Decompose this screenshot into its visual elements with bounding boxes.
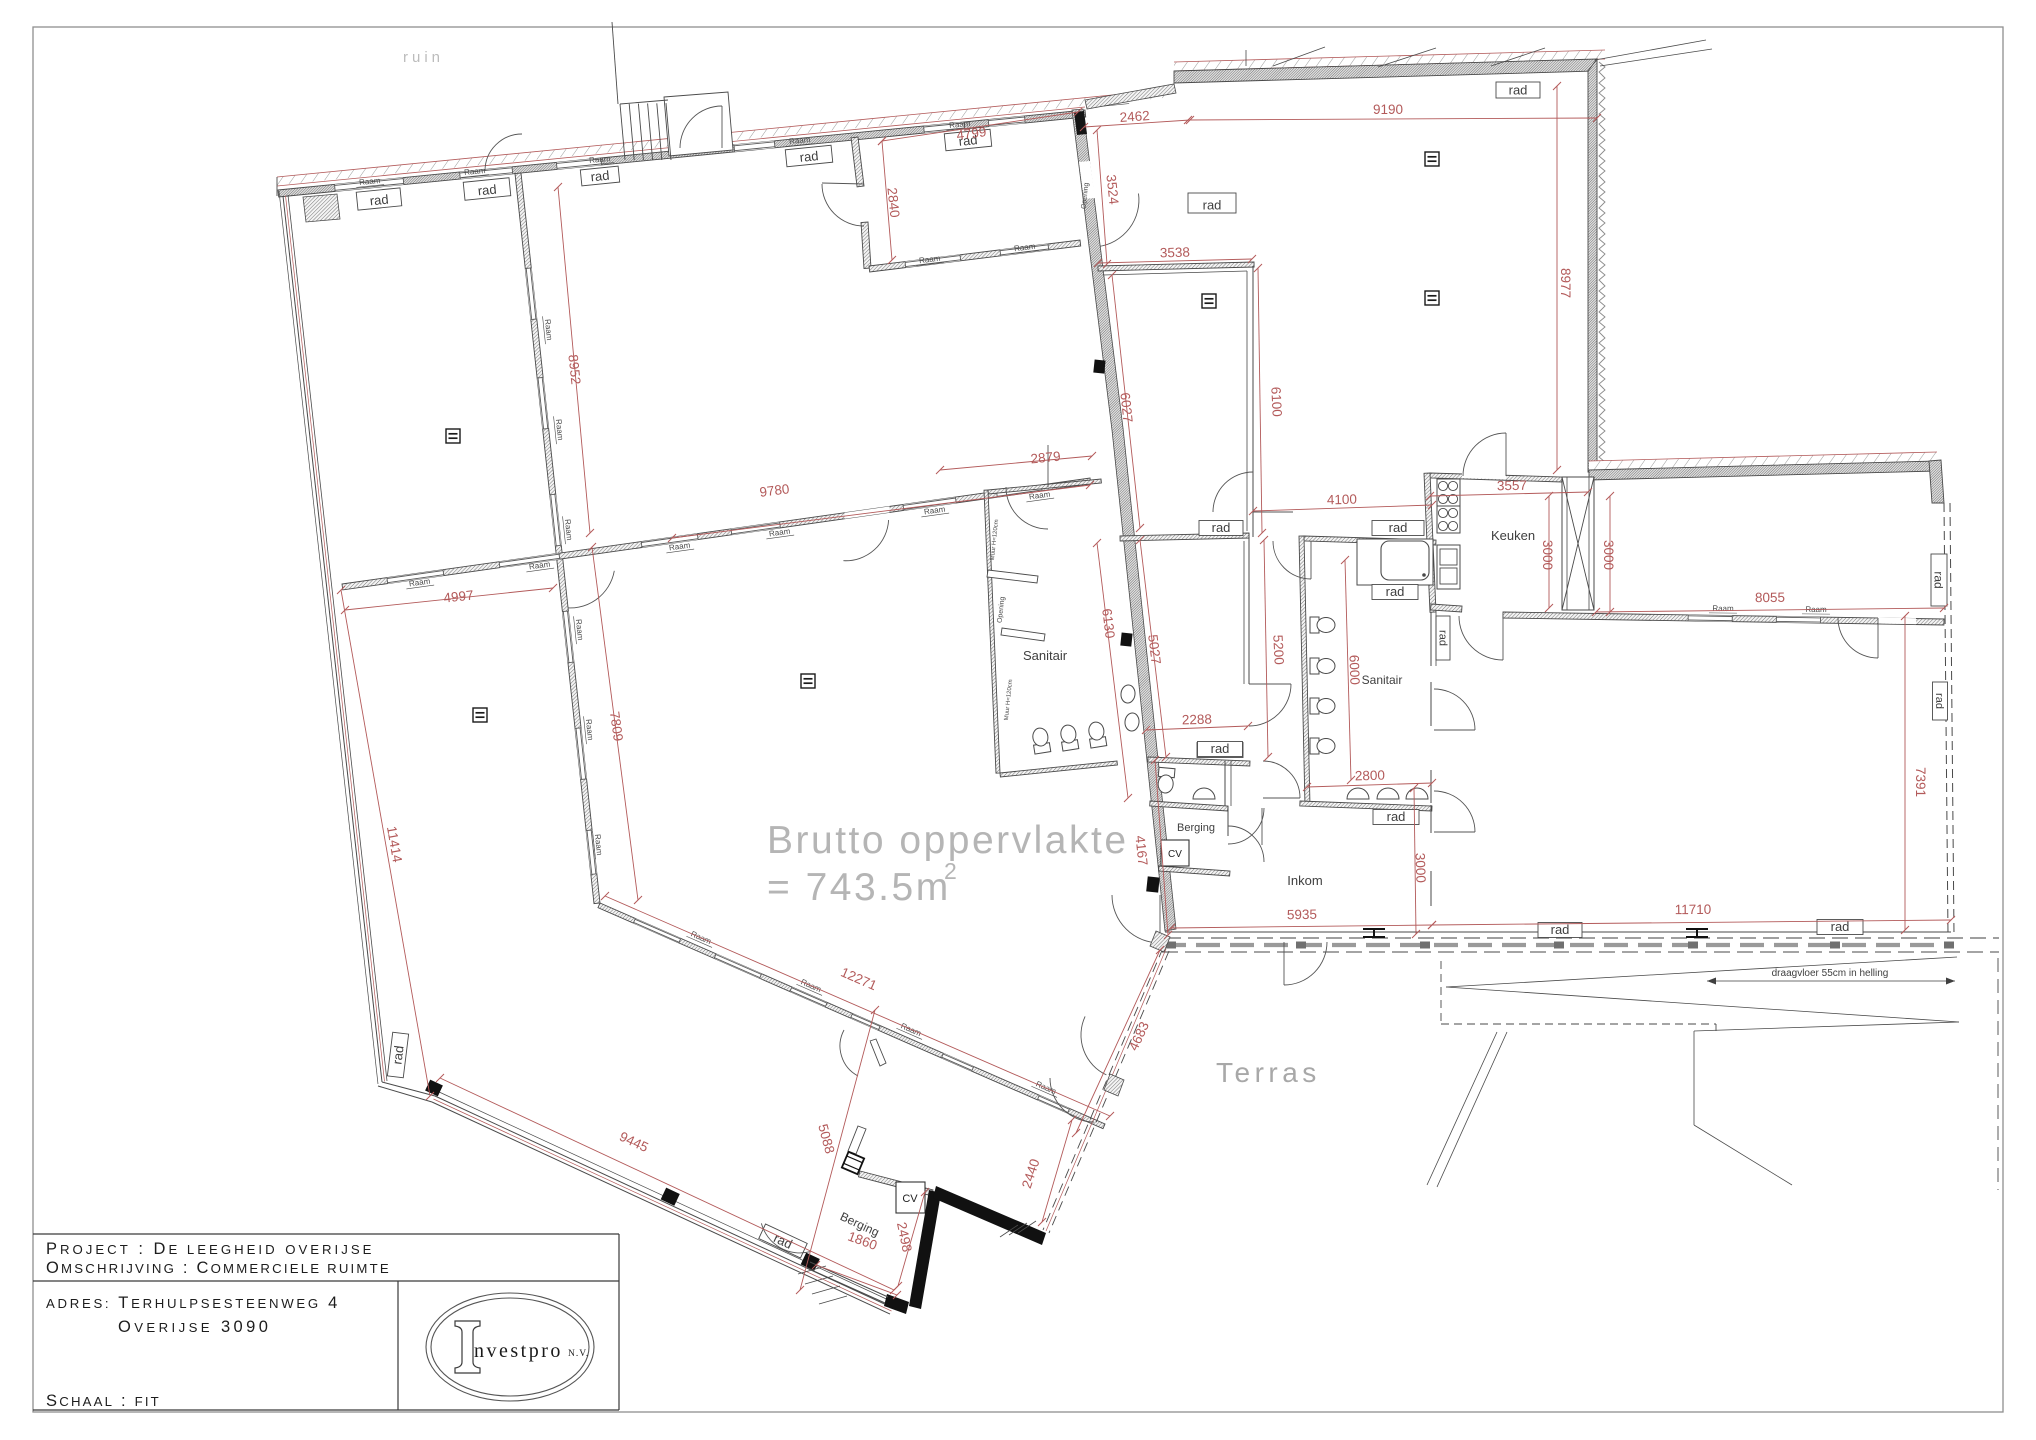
svg-text:= 743.5m: = 743.5m (767, 866, 951, 909)
svg-text:Keuken: Keuken (1491, 528, 1535, 543)
svg-text:ruin: ruin (403, 49, 444, 66)
svg-text:8977: 8977 (1558, 268, 1573, 298)
svg-text:rad: rad (1389, 520, 1408, 535)
svg-text:rad: rad (590, 168, 610, 185)
svg-text:rad: rad (389, 1045, 406, 1065)
svg-text:3000: 3000 (1601, 540, 1616, 570)
svg-text:Sanitair: Sanitair (1023, 648, 1068, 663)
svg-text:3000: 3000 (1412, 853, 1428, 884)
svg-text:3557: 3557 (1497, 478, 1527, 494)
svg-text:8952: 8952 (565, 354, 583, 385)
svg-text:rad: rad (477, 182, 497, 199)
svg-text:rad: rad (1211, 741, 1230, 756)
svg-text:6100: 6100 (1268, 386, 1285, 417)
svg-text:rad: rad (369, 192, 389, 209)
svg-text:Berging: Berging (1177, 822, 1215, 834)
svg-text:Terras: Terras (1216, 1057, 1321, 1088)
svg-text:Inkom: Inkom (1287, 873, 1322, 888)
svg-text:OMSCHRIJVING : COMMERCIELE RUI: OMSCHRIJVING : COMMERCIELE RUIMTE (46, 1259, 391, 1277)
svg-text:rad: rad (1933, 693, 1945, 709)
svg-text:rad: rad (799, 148, 819, 165)
svg-text:5935: 5935 (1287, 907, 1317, 923)
svg-text:2462: 2462 (1119, 108, 1150, 125)
svg-text:5200: 5200 (1270, 634, 1287, 665)
svg-text:4100: 4100 (1327, 492, 1357, 508)
svg-text:2: 2 (944, 858, 957, 884)
svg-text:2288: 2288 (1182, 712, 1212, 728)
svg-text:rad: rad (1509, 83, 1528, 98)
svg-text:6000: 6000 (1346, 655, 1362, 686)
svg-text:rad: rad (1387, 809, 1406, 824)
svg-text:Brutto oppervlakte: Brutto oppervlakte (767, 819, 1129, 862)
svg-text:PROJECT : DE LEEGHEID OVERIJS: PROJECT : DE LEEGHEID OVERIJSE (46, 1240, 374, 1258)
svg-text:CV: CV (1168, 849, 1182, 860)
svg-text:7391: 7391 (1913, 767, 1928, 797)
svg-text:rad: rad (1203, 198, 1222, 213)
svg-text:11710: 11710 (1675, 902, 1712, 917)
svg-text:3524: 3524 (1103, 174, 1121, 206)
svg-text:rad: rad (1932, 571, 1946, 588)
svg-text:Raam: Raam (1712, 604, 1734, 613)
svg-text:draagvloer 55cm in helling: draagvloer 55cm in helling (1772, 968, 1889, 979)
svg-text:8055: 8055 (1755, 590, 1785, 605)
svg-text:4167: 4167 (1132, 835, 1150, 866)
svg-text:6027: 6027 (1117, 392, 1135, 423)
svg-text:rad: rad (1437, 630, 1449, 646)
svg-text:Sanitair: Sanitair (1362, 673, 1403, 687)
svg-text:2840: 2840 (884, 187, 902, 218)
svg-text:N.V.: N.V. (568, 1349, 589, 1359)
svg-text:3000: 3000 (1540, 540, 1555, 570)
svg-text:rad: rad (1386, 584, 1405, 599)
svg-text:nvestpro: nvestpro (474, 1340, 563, 1362)
svg-text:2879: 2879 (1030, 449, 1061, 467)
svg-text:3538: 3538 (1160, 245, 1190, 261)
svg-text:4997: 4997 (443, 587, 474, 605)
svg-text:OVERIJSE 3090: OVERIJSE 3090 (118, 1318, 271, 1336)
svg-text:rad: rad (1212, 520, 1231, 535)
svg-text:2800: 2800 (1355, 768, 1385, 784)
svg-text:SCHAAL : FIT: SCHAAL : FIT (46, 1392, 161, 1410)
svg-text:CV: CV (902, 1193, 918, 1205)
svg-text:ADRES: TERHULPSESTEENWEG 4: ADRES: TERHULPSESTEENWEG 4 (46, 1294, 340, 1312)
svg-text:9190: 9190 (1373, 102, 1403, 117)
